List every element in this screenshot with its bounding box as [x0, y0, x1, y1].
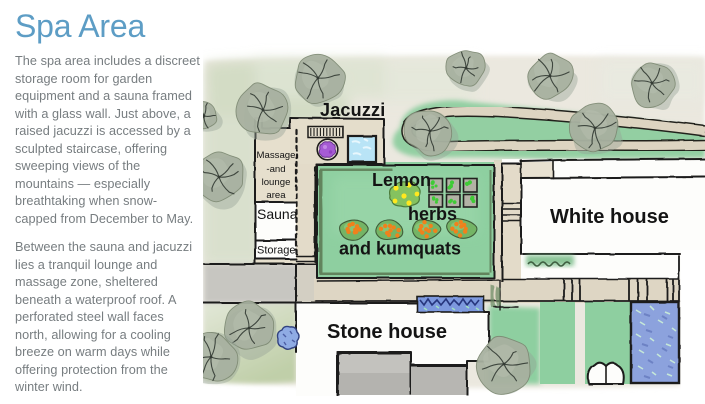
svg-text:Massage: Massage: [257, 150, 296, 161]
svg-text:and kumquats: and kumquats: [339, 239, 461, 259]
svg-text:area: area: [266, 190, 286, 201]
svg-text:Lemon: Lemon: [372, 170, 431, 190]
svg-text:Stone house: Stone house: [327, 321, 447, 343]
svg-text:Storage: Storage: [257, 245, 296, 257]
svg-text:White house: White house: [550, 206, 669, 228]
svg-text:Sauna: Sauna: [257, 206, 298, 222]
svg-text:herbs: herbs: [408, 204, 457, 224]
svg-text:Jacuzzi: Jacuzzi: [320, 100, 385, 120]
svg-text:-and: -and: [266, 164, 285, 175]
svg-text:lounge: lounge: [262, 177, 291, 188]
